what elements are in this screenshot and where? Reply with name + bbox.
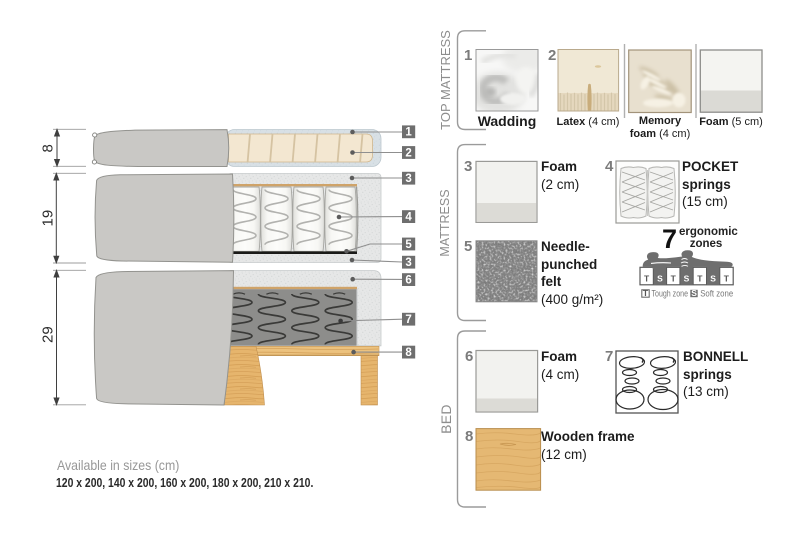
svg-text:Soft zone: Soft zone bbox=[700, 289, 733, 299]
svg-text:2: 2 bbox=[405, 147, 411, 159]
svg-text:T: T bbox=[643, 288, 649, 298]
svg-text:T: T bbox=[671, 274, 677, 284]
svg-text:3: 3 bbox=[405, 173, 411, 185]
svg-text:T: T bbox=[644, 274, 650, 284]
svg-text:5: 5 bbox=[405, 239, 412, 251]
svg-text:S: S bbox=[691, 288, 697, 298]
svg-text:29: 29 bbox=[39, 326, 56, 343]
svg-text:T: T bbox=[724, 274, 730, 284]
svg-text:4: 4 bbox=[405, 211, 412, 223]
svg-text:7: 7 bbox=[405, 314, 411, 326]
svg-text:8: 8 bbox=[405, 347, 412, 359]
svg-text:19: 19 bbox=[39, 210, 56, 227]
svg-text:S: S bbox=[657, 274, 663, 284]
svg-text:Tough zone: Tough zone bbox=[652, 289, 689, 299]
svg-text:6: 6 bbox=[405, 274, 411, 286]
svg-text:S: S bbox=[684, 274, 690, 284]
svg-text:1: 1 bbox=[405, 127, 412, 139]
svg-text:T: T bbox=[697, 274, 703, 284]
svg-text:S: S bbox=[710, 274, 716, 284]
svg-text:3: 3 bbox=[405, 257, 411, 269]
svg-text:8: 8 bbox=[39, 144, 56, 152]
